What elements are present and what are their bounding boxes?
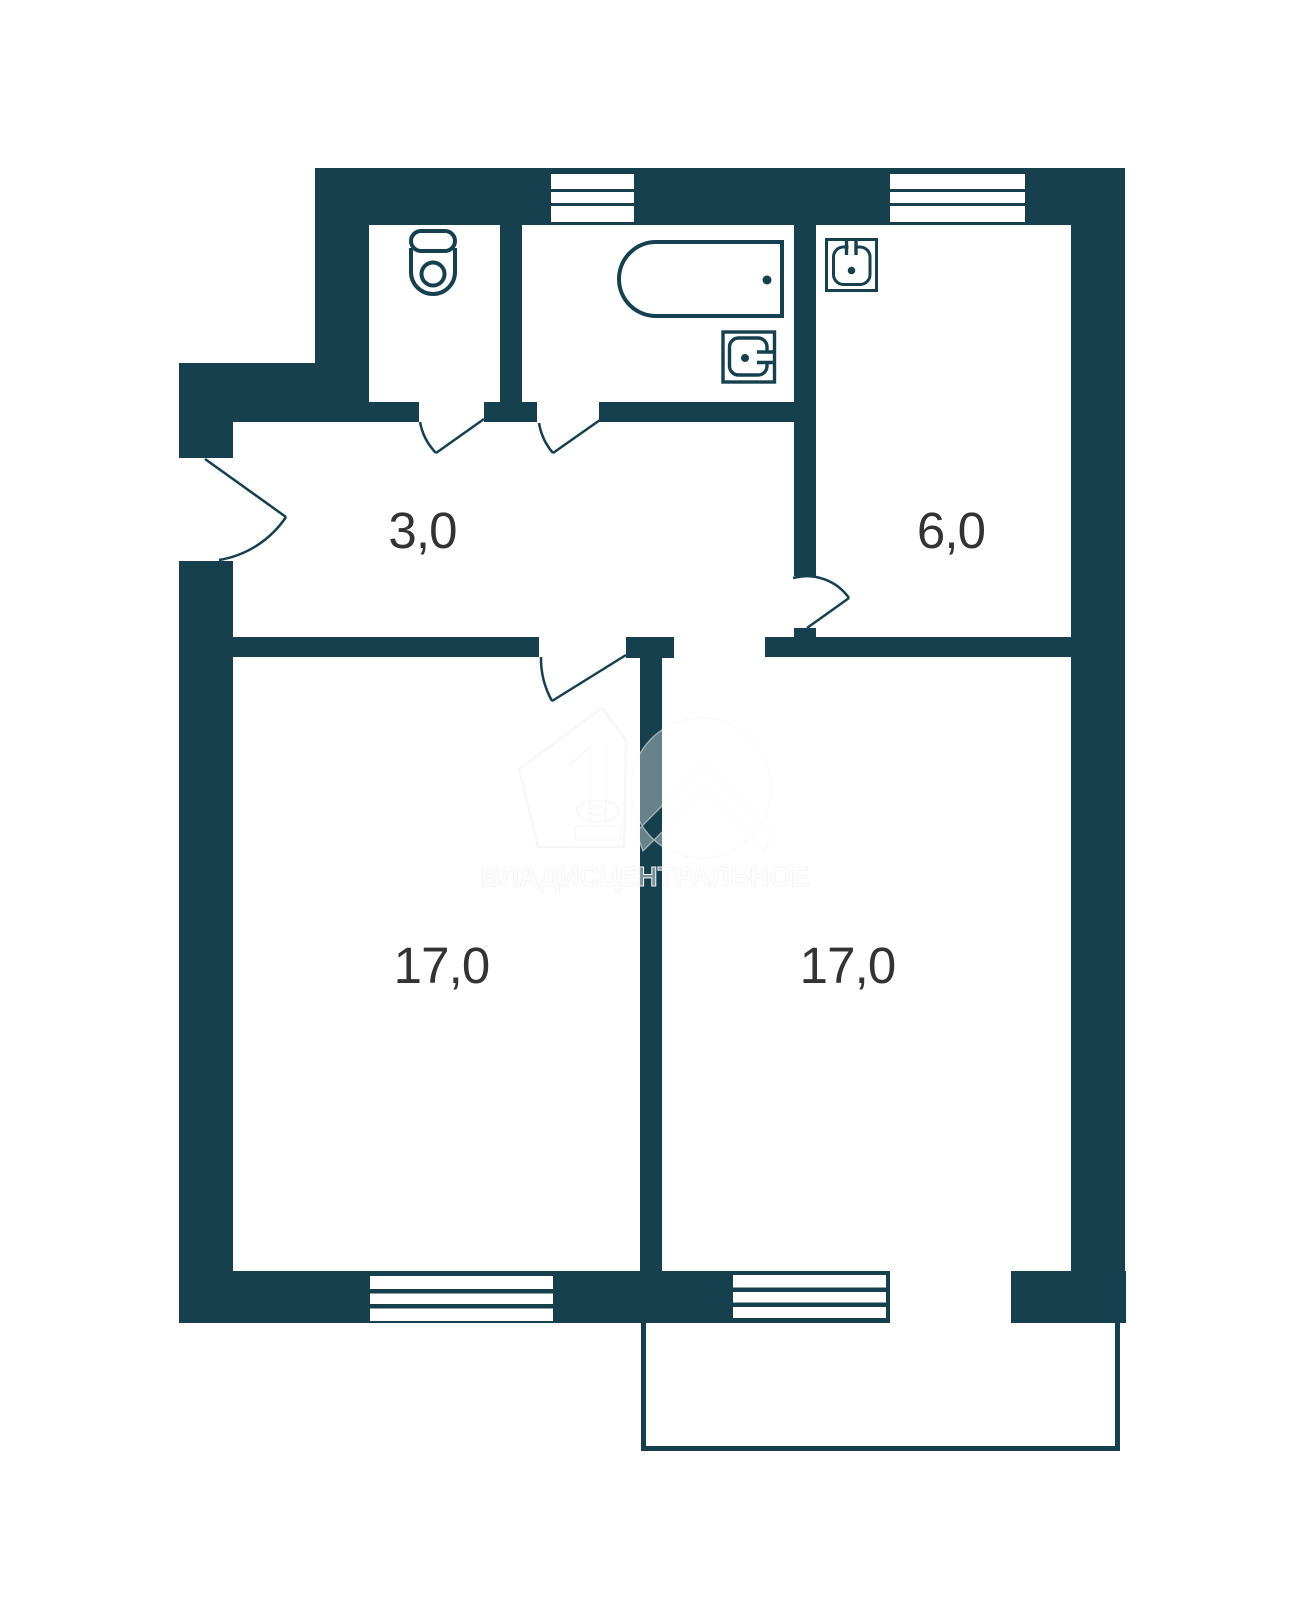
svg-text:17,0: 17,0	[800, 937, 896, 994]
svg-text:6,0: 6,0	[917, 502, 985, 559]
svg-text:3,0: 3,0	[388, 502, 456, 559]
svg-text:ВЛАДИСЦЕНТРАЛЬНОЕ: ВЛАДИСЦЕНТРАЛЬНОЕ	[481, 861, 809, 892]
svg-text:17,0: 17,0	[394, 937, 490, 994]
